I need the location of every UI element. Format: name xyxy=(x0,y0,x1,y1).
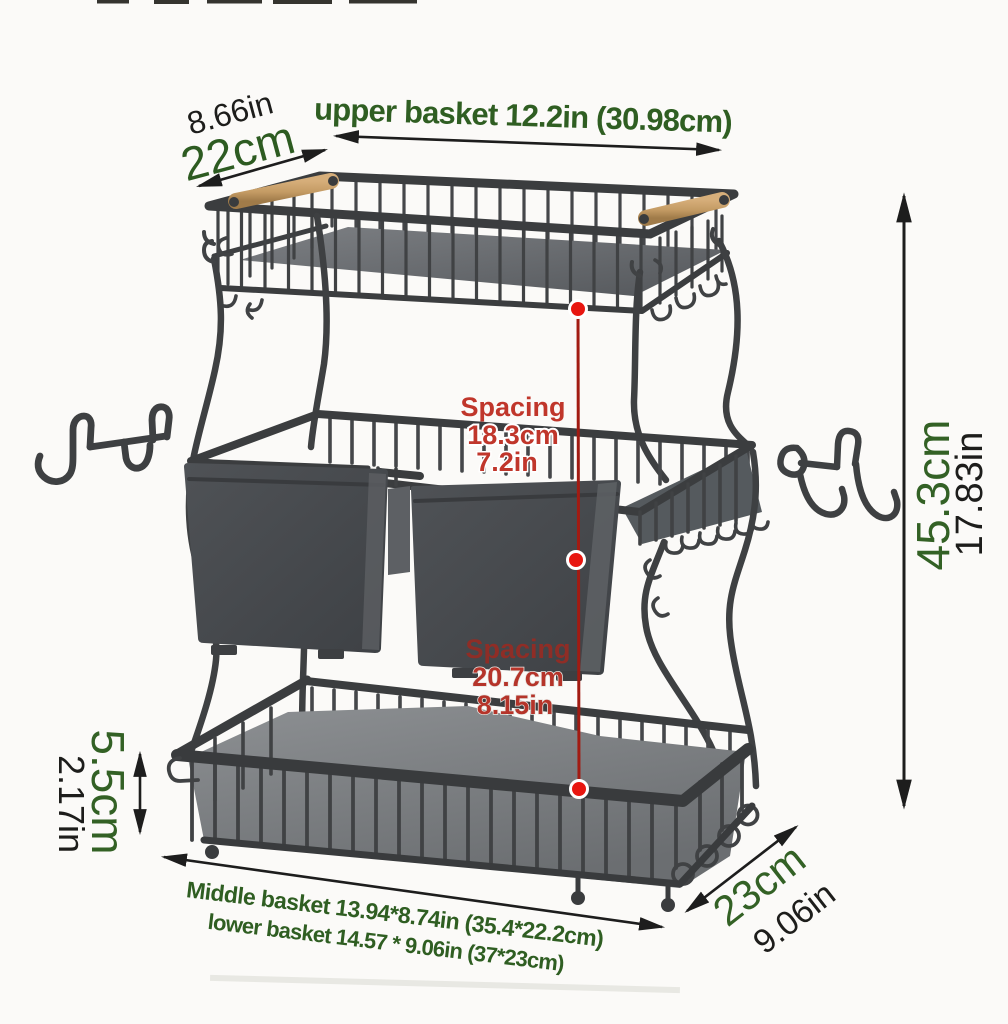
svg-text:18.3cm: 18.3cm xyxy=(467,420,559,450)
svg-text:17.83in: 17.83in xyxy=(949,432,991,557)
svg-text:7.2in: 7.2in xyxy=(476,447,538,477)
svg-text:8.15in: 8.15in xyxy=(477,690,554,720)
svg-text:Spacing: Spacing xyxy=(465,634,570,664)
svg-text:2.17in: 2.17in xyxy=(51,755,92,853)
svg-text:Spacing: Spacing xyxy=(460,392,565,422)
svg-text:20.7cm: 20.7cm xyxy=(472,662,564,692)
